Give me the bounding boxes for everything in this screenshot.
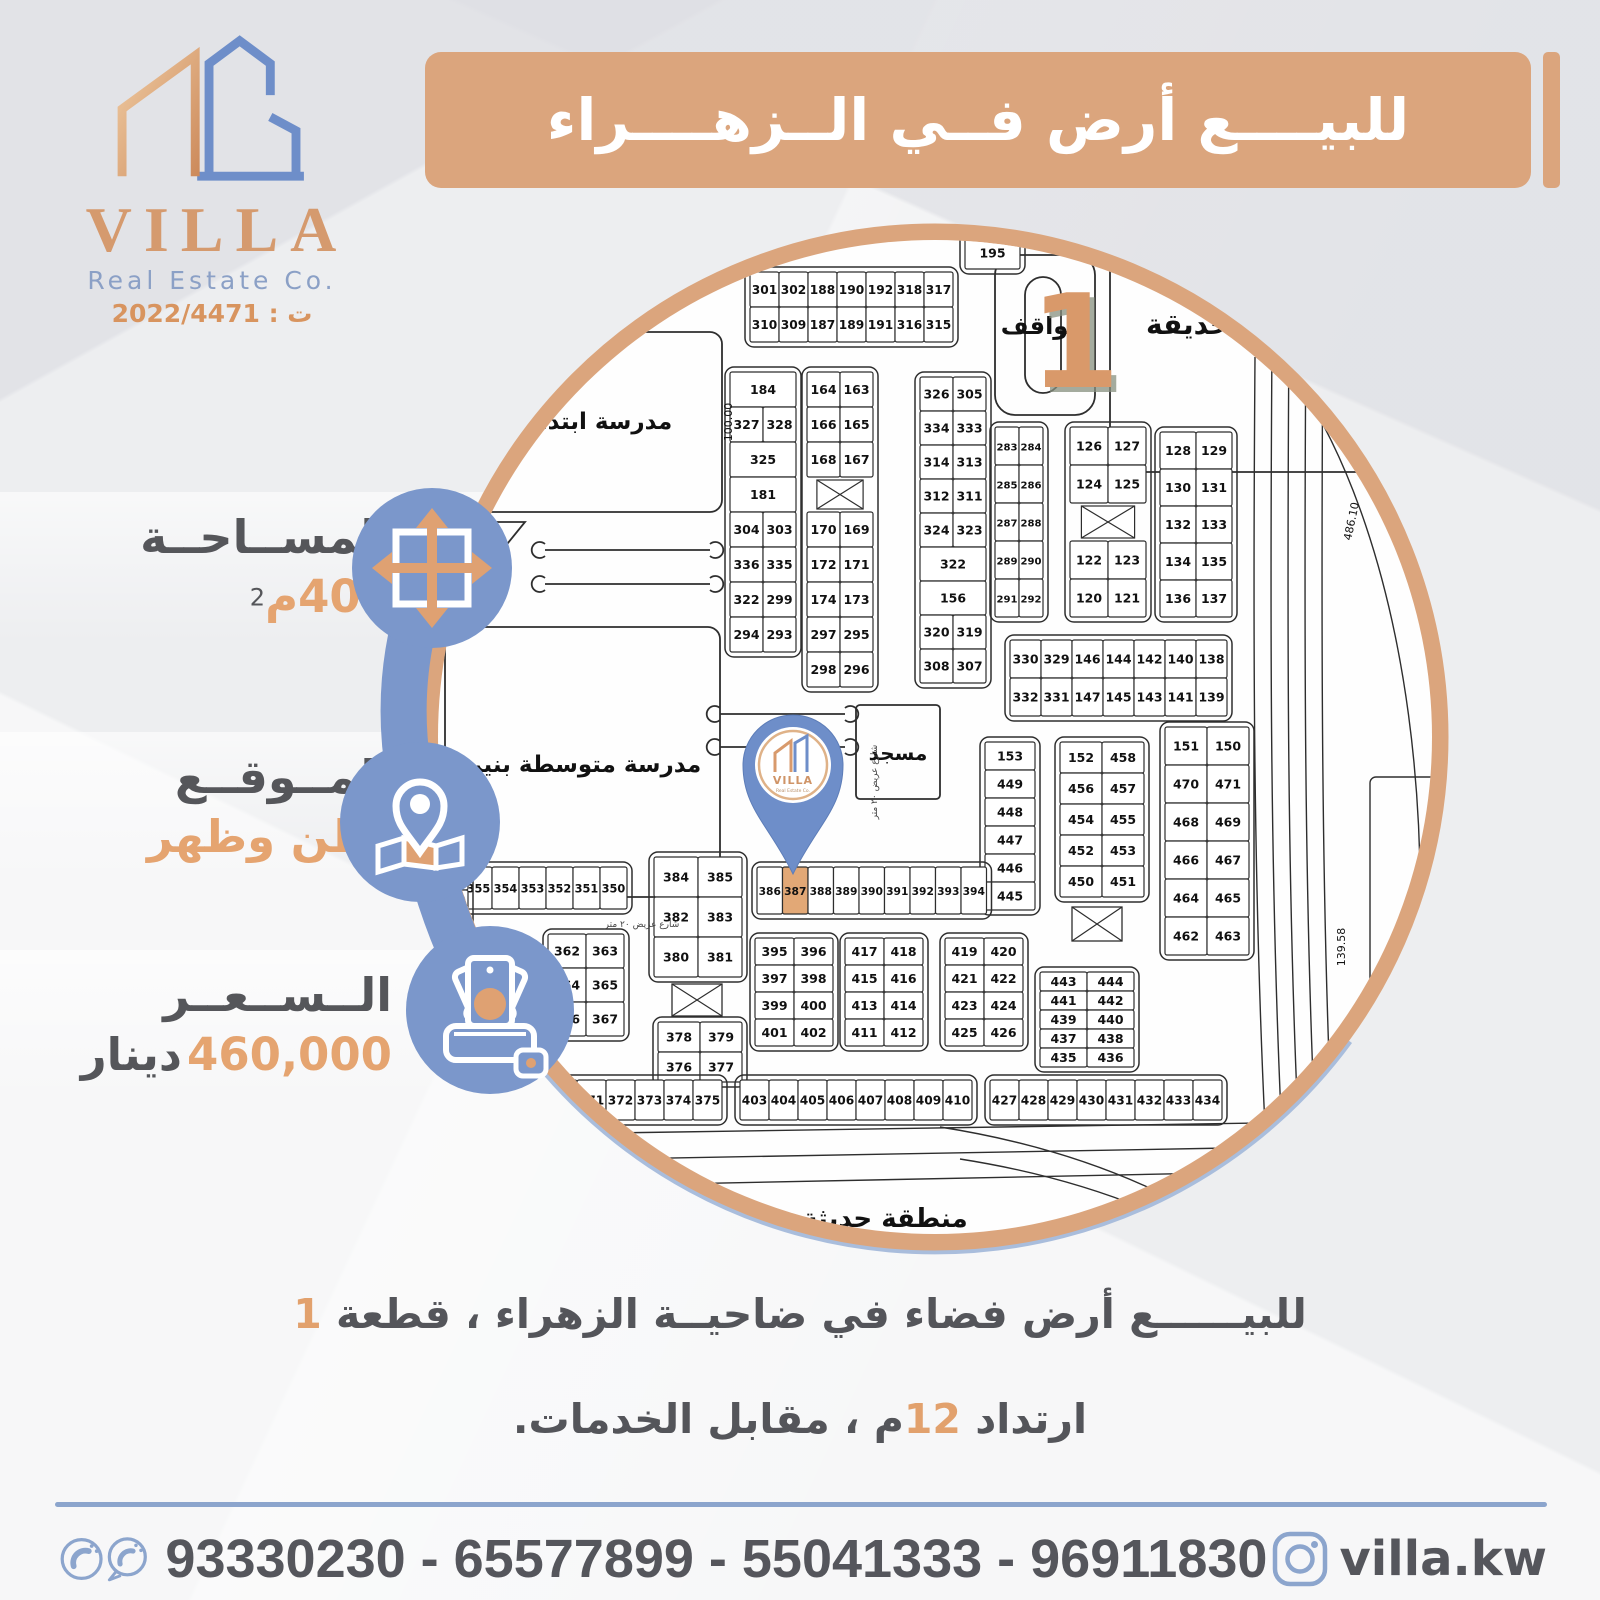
svg-text:392: 392 bbox=[912, 885, 934, 898]
svg-text:401: 401 bbox=[761, 1025, 787, 1040]
svg-text:137: 137 bbox=[1201, 591, 1227, 606]
svg-text:126: 126 bbox=[1076, 439, 1102, 454]
svg-text:150: 150 bbox=[1215, 739, 1241, 754]
svg-text:362: 362 bbox=[554, 944, 580, 959]
svg-text:328: 328 bbox=[766, 417, 792, 432]
svg-text:173: 173 bbox=[843, 592, 869, 607]
title-banner-endbar bbox=[1543, 52, 1560, 188]
svg-text:165: 165 bbox=[843, 417, 869, 432]
svg-text:403: 403 bbox=[742, 1094, 767, 1108]
svg-text:439: 439 bbox=[1050, 1012, 1076, 1027]
svg-text:390: 390 bbox=[861, 885, 883, 898]
price-icon-circle bbox=[406, 926, 574, 1094]
svg-text:181: 181 bbox=[750, 487, 776, 502]
svg-text:333: 333 bbox=[956, 421, 982, 436]
svg-text:464: 464 bbox=[1173, 891, 1199, 906]
svg-text:462: 462 bbox=[1173, 929, 1199, 944]
svg-text:315: 315 bbox=[926, 318, 951, 332]
svg-text:292: 292 bbox=[1020, 595, 1041, 606]
location-icon-circle bbox=[340, 742, 500, 902]
svg-text:293: 293 bbox=[766, 627, 792, 642]
svg-text:309: 309 bbox=[781, 318, 806, 332]
svg-text:377: 377 bbox=[708, 1060, 734, 1075]
svg-text:446: 446 bbox=[997, 861, 1023, 876]
svg-text:291: 291 bbox=[996, 595, 1017, 606]
svg-text:451: 451 bbox=[1110, 874, 1136, 889]
svg-text:433: 433 bbox=[1166, 1094, 1191, 1108]
svg-text:310: 310 bbox=[752, 318, 777, 332]
svg-text:187: 187 bbox=[810, 318, 835, 332]
dim-school: 100.00 bbox=[722, 403, 735, 442]
svg-text:334: 334 bbox=[923, 421, 949, 436]
map-scene: 3013021881901923183173103091871891913163… bbox=[320, 180, 1580, 1440]
block-number: 1 bbox=[1030, 266, 1120, 418]
svg-text:303: 303 bbox=[766, 522, 792, 537]
svg-text:317: 317 bbox=[926, 283, 951, 297]
title-banner: للبيــــع أرض فــي الــزهــــراء bbox=[425, 52, 1531, 188]
school-middle-label: مدرسة متوسطة بنين bbox=[463, 752, 701, 778]
svg-text:184: 184 bbox=[750, 382, 776, 397]
dim-right2: 139.58 bbox=[1335, 928, 1348, 967]
description-line1: للبيــــــع أرض فضاء في ضاحيــة الزهراء … bbox=[120, 1262, 1480, 1367]
svg-text:332: 332 bbox=[1012, 690, 1038, 705]
svg-text:129: 129 bbox=[1201, 443, 1227, 458]
instagram-contact[interactable]: villa.kw bbox=[1267, 1526, 1547, 1592]
svg-text:407: 407 bbox=[858, 1094, 883, 1108]
svg-text:443: 443 bbox=[1050, 974, 1076, 989]
svg-text:454: 454 bbox=[1068, 812, 1094, 827]
footer-divider bbox=[55, 1502, 1547, 1507]
svg-text:284: 284 bbox=[1020, 443, 1041, 454]
svg-text:426: 426 bbox=[990, 1025, 1016, 1040]
svg-text:170: 170 bbox=[810, 522, 836, 537]
svg-text:444: 444 bbox=[1097, 974, 1123, 989]
svg-text:409: 409 bbox=[916, 1094, 941, 1108]
svg-text:147: 147 bbox=[1074, 690, 1100, 705]
phone-numbers[interactable]: 93330230 - 65577899 - 55041333 - 9691183… bbox=[165, 1528, 1267, 1590]
svg-text:389: 389 bbox=[835, 885, 857, 898]
svg-text:420: 420 bbox=[990, 944, 1016, 959]
svg-text:131: 131 bbox=[1201, 480, 1227, 495]
plot-number-text: 1 bbox=[293, 1290, 322, 1338]
svg-text:384: 384 bbox=[663, 870, 689, 885]
svg-text:436: 436 bbox=[1097, 1050, 1123, 1065]
svg-text:385: 385 bbox=[707, 870, 733, 885]
svg-text:399: 399 bbox=[761, 998, 787, 1013]
pin-logo-name: VILLA bbox=[773, 774, 813, 787]
svg-text:326: 326 bbox=[923, 387, 949, 402]
svg-text:350: 350 bbox=[602, 882, 626, 896]
svg-text:412: 412 bbox=[890, 1025, 916, 1040]
svg-text:136: 136 bbox=[1165, 591, 1191, 606]
svg-text:139: 139 bbox=[1198, 690, 1224, 705]
svg-text:445: 445 bbox=[997, 889, 1023, 904]
svg-text:413: 413 bbox=[851, 998, 877, 1013]
svg-text:397: 397 bbox=[761, 971, 787, 986]
svg-text:130: 130 bbox=[1165, 480, 1191, 495]
street-label: شارع عريض ٢٠ متر bbox=[870, 745, 880, 821]
svg-text:465: 465 bbox=[1215, 891, 1241, 906]
svg-text:435: 435 bbox=[1050, 1050, 1076, 1065]
svg-text:287: 287 bbox=[996, 519, 1017, 530]
svg-text:354: 354 bbox=[494, 882, 518, 896]
svg-text:458: 458 bbox=[1110, 750, 1136, 765]
svg-text:305: 305 bbox=[956, 387, 982, 402]
svg-text:322: 322 bbox=[733, 592, 759, 607]
pin-logo-tagline: Real Estate Co. bbox=[776, 788, 810, 794]
svg-text:307: 307 bbox=[956, 659, 982, 674]
svg-text:372: 372 bbox=[608, 1094, 633, 1108]
svg-text:172: 172 bbox=[810, 557, 836, 572]
svg-text:323: 323 bbox=[956, 523, 982, 538]
svg-text:352: 352 bbox=[548, 882, 572, 896]
svg-text:470: 470 bbox=[1173, 777, 1199, 792]
svg-text:143: 143 bbox=[1136, 690, 1162, 705]
svg-text:325: 325 bbox=[750, 452, 776, 467]
svg-text:320: 320 bbox=[923, 625, 949, 640]
svg-text:127: 127 bbox=[1114, 439, 1140, 454]
svg-text:468: 468 bbox=[1173, 815, 1199, 830]
svg-text:396: 396 bbox=[800, 944, 826, 959]
svg-text:415: 415 bbox=[851, 971, 877, 986]
svg-text:467: 467 bbox=[1215, 853, 1241, 868]
svg-text:168: 168 bbox=[810, 452, 836, 467]
svg-text:438: 438 bbox=[1097, 1031, 1123, 1046]
svg-text:295: 295 bbox=[843, 627, 869, 642]
svg-text:417: 417 bbox=[851, 944, 877, 959]
svg-text:166: 166 bbox=[810, 417, 836, 432]
svg-text:151: 151 bbox=[1173, 739, 1199, 754]
svg-text:450: 450 bbox=[1068, 874, 1094, 889]
svg-text:122: 122 bbox=[1076, 553, 1102, 568]
description-line2: ارتداد 12م ، مقابل الخدمات. bbox=[120, 1367, 1480, 1472]
whatsapp-icon bbox=[100, 1522, 153, 1596]
svg-text:455: 455 bbox=[1110, 812, 1136, 827]
svg-text:387: 387 bbox=[784, 885, 806, 898]
svg-text:195: 195 bbox=[979, 246, 1005, 261]
setback-number-text: 12 bbox=[904, 1395, 961, 1443]
svg-text:121: 121 bbox=[1114, 591, 1140, 606]
svg-text:133: 133 bbox=[1201, 517, 1227, 532]
svg-text:456: 456 bbox=[1068, 781, 1094, 796]
svg-text:141: 141 bbox=[1167, 690, 1193, 705]
svg-text:449: 449 bbox=[997, 777, 1023, 792]
svg-text:327: 327 bbox=[733, 417, 759, 432]
svg-text:376: 376 bbox=[666, 1060, 692, 1075]
svg-text:400: 400 bbox=[800, 998, 826, 1013]
svg-text:134: 134 bbox=[1165, 554, 1191, 569]
svg-text:430: 430 bbox=[1079, 1094, 1104, 1108]
svg-text:379: 379 bbox=[708, 1030, 734, 1045]
svg-text:466: 466 bbox=[1173, 853, 1199, 868]
svg-text:383: 383 bbox=[707, 910, 733, 925]
svg-text:290: 290 bbox=[1020, 557, 1041, 568]
svg-text:424: 424 bbox=[990, 998, 1016, 1013]
svg-text:367: 367 bbox=[592, 1012, 618, 1027]
svg-text:416: 416 bbox=[890, 971, 916, 986]
svg-text:331: 331 bbox=[1043, 690, 1069, 705]
svg-text:419: 419 bbox=[951, 944, 977, 959]
svg-text:388: 388 bbox=[810, 885, 832, 898]
svg-text:393: 393 bbox=[937, 885, 959, 898]
svg-text:375: 375 bbox=[695, 1094, 720, 1108]
svg-text:410: 410 bbox=[945, 1094, 970, 1108]
svg-text:120: 120 bbox=[1076, 591, 1102, 606]
area-icon-circle bbox=[352, 488, 512, 648]
svg-text:132: 132 bbox=[1165, 517, 1191, 532]
description: للبيــــــع أرض فضاء في ضاحيــة الزهراء … bbox=[120, 1262, 1480, 1471]
svg-text:174: 174 bbox=[810, 592, 836, 607]
svg-text:428: 428 bbox=[1021, 1094, 1046, 1108]
svg-text:191: 191 bbox=[868, 318, 893, 332]
svg-text:452: 452 bbox=[1068, 843, 1094, 858]
svg-text:394: 394 bbox=[963, 885, 985, 898]
svg-text:463: 463 bbox=[1215, 929, 1241, 944]
svg-text:434: 434 bbox=[1195, 1094, 1220, 1108]
svg-text:288: 288 bbox=[1020, 519, 1041, 530]
svg-text:422: 422 bbox=[990, 971, 1016, 986]
svg-text:304: 304 bbox=[733, 522, 759, 537]
svg-text:335: 335 bbox=[766, 557, 792, 572]
svg-text:125: 125 bbox=[1114, 477, 1140, 492]
svg-text:353: 353 bbox=[521, 882, 545, 896]
svg-text:329: 329 bbox=[1043, 652, 1069, 667]
svg-text:429: 429 bbox=[1050, 1094, 1075, 1108]
svg-text:380: 380 bbox=[663, 950, 689, 965]
svg-text:289: 289 bbox=[996, 557, 1017, 568]
svg-text:301: 301 bbox=[752, 283, 777, 297]
svg-text:285: 285 bbox=[996, 481, 1017, 492]
svg-text:398: 398 bbox=[800, 971, 826, 986]
svg-text:124: 124 bbox=[1076, 477, 1102, 492]
svg-text:123: 123 bbox=[1114, 553, 1140, 568]
svg-text:167: 167 bbox=[843, 452, 869, 467]
svg-text:378: 378 bbox=[666, 1030, 692, 1045]
svg-text:408: 408 bbox=[887, 1094, 912, 1108]
svg-text:192: 192 bbox=[868, 283, 893, 297]
svg-text:190: 190 bbox=[839, 283, 864, 297]
svg-text:146: 146 bbox=[1074, 652, 1100, 667]
svg-text:330: 330 bbox=[1012, 652, 1038, 667]
svg-text:404: 404 bbox=[771, 1094, 796, 1108]
svg-text:189: 189 bbox=[839, 318, 864, 332]
svg-text:418: 418 bbox=[890, 944, 916, 959]
svg-text:414: 414 bbox=[890, 998, 916, 1013]
page-title: للبيــــع أرض فــي الــزهــــراء bbox=[547, 86, 1409, 154]
svg-text:431: 431 bbox=[1108, 1094, 1133, 1108]
svg-text:457: 457 bbox=[1110, 781, 1136, 796]
svg-text:298: 298 bbox=[810, 662, 836, 677]
svg-text:171: 171 bbox=[843, 557, 869, 572]
svg-text:363: 363 bbox=[592, 944, 618, 959]
svg-text:169: 169 bbox=[843, 522, 869, 537]
svg-text:163: 163 bbox=[843, 382, 869, 397]
svg-text:299: 299 bbox=[766, 592, 792, 607]
svg-text:294: 294 bbox=[733, 627, 759, 642]
svg-text:395: 395 bbox=[761, 944, 787, 959]
svg-text:373: 373 bbox=[637, 1094, 662, 1108]
svg-text:297: 297 bbox=[810, 627, 836, 642]
svg-text:188: 188 bbox=[810, 283, 835, 297]
svg-text:425: 425 bbox=[951, 1025, 977, 1040]
svg-text:311: 311 bbox=[956, 489, 982, 504]
svg-text:302: 302 bbox=[781, 283, 806, 297]
flyer-canvas: VILLA Real Estate Co. ت : 2022/4471 للبي… bbox=[0, 0, 1600, 1600]
svg-text:312: 312 bbox=[923, 489, 949, 504]
svg-text:442: 442 bbox=[1097, 993, 1123, 1008]
svg-text:351: 351 bbox=[575, 882, 599, 896]
svg-text:318: 318 bbox=[897, 283, 922, 297]
svg-text:440: 440 bbox=[1097, 1012, 1123, 1027]
svg-text:164: 164 bbox=[810, 382, 836, 397]
svg-text:128: 128 bbox=[1165, 443, 1191, 458]
svg-text:471: 471 bbox=[1215, 777, 1241, 792]
svg-text:411: 411 bbox=[851, 1025, 877, 1040]
street-label-2: شارع عريض ٢٠ متر bbox=[604, 920, 680, 930]
svg-text:447: 447 bbox=[997, 833, 1023, 848]
svg-text:406: 406 bbox=[829, 1094, 854, 1108]
svg-text:142: 142 bbox=[1136, 652, 1162, 667]
svg-text:296: 296 bbox=[843, 662, 869, 677]
svg-text:402: 402 bbox=[800, 1025, 826, 1040]
svg-text:283: 283 bbox=[996, 443, 1017, 454]
svg-text:322: 322 bbox=[940, 557, 966, 572]
svg-text:152: 152 bbox=[1068, 750, 1094, 765]
svg-text:140: 140 bbox=[1167, 652, 1193, 667]
svg-text:336: 336 bbox=[733, 557, 759, 572]
svg-text:138: 138 bbox=[1198, 652, 1224, 667]
svg-text:437: 437 bbox=[1050, 1031, 1076, 1046]
svg-text:135: 135 bbox=[1201, 554, 1227, 569]
footer: 93330230 - 65577899 - 55041333 - 9691183… bbox=[55, 1516, 1547, 1600]
svg-text:286: 286 bbox=[1020, 481, 1041, 492]
svg-text:453: 453 bbox=[1110, 843, 1136, 858]
svg-text:448: 448 bbox=[997, 805, 1023, 820]
instagram-icon bbox=[1267, 1526, 1333, 1592]
svg-text:314: 314 bbox=[923, 455, 949, 470]
svg-text:324: 324 bbox=[923, 523, 949, 538]
svg-text:365: 365 bbox=[592, 978, 618, 993]
svg-text:319: 319 bbox=[956, 625, 982, 640]
svg-text:156: 156 bbox=[940, 591, 966, 606]
svg-text:145: 145 bbox=[1105, 690, 1131, 705]
price-unit: دينار bbox=[81, 1028, 182, 1081]
area-sup: 2 bbox=[250, 583, 265, 611]
svg-text:381: 381 bbox=[707, 950, 733, 965]
svg-text:391: 391 bbox=[886, 885, 908, 898]
svg-text:308: 308 bbox=[923, 659, 949, 674]
svg-text:427: 427 bbox=[992, 1094, 1017, 1108]
svg-text:469: 469 bbox=[1215, 815, 1241, 830]
svg-text:144: 144 bbox=[1105, 652, 1131, 667]
svg-text:374: 374 bbox=[666, 1094, 691, 1108]
instagram-handle[interactable]: villa.kw bbox=[1339, 1531, 1547, 1587]
svg-text:316: 316 bbox=[897, 318, 922, 332]
svg-text:421: 421 bbox=[951, 971, 977, 986]
buildings-logo-icon bbox=[97, 26, 327, 194]
svg-text:313: 313 bbox=[956, 455, 982, 470]
svg-text:386: 386 bbox=[759, 885, 781, 898]
svg-text:405: 405 bbox=[800, 1094, 825, 1108]
svg-text:432: 432 bbox=[1137, 1094, 1162, 1108]
svg-text:441: 441 bbox=[1050, 993, 1076, 1008]
svg-text:423: 423 bbox=[951, 998, 977, 1013]
svg-text:153: 153 bbox=[997, 749, 1023, 764]
